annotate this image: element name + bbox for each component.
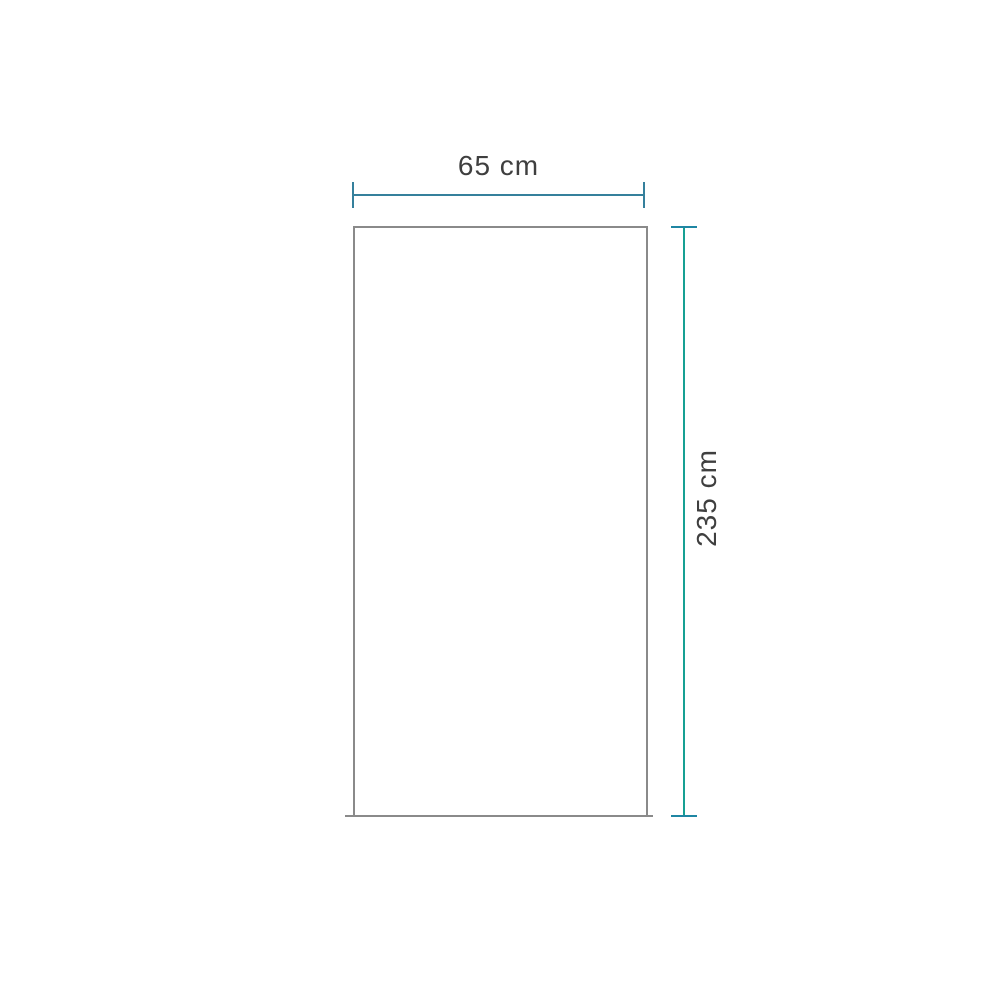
width-dimension-line	[353, 194, 645, 196]
height-dimension-line	[683, 226, 685, 817]
height-dimension-cap-bottom	[671, 815, 697, 817]
width-dimension-cap-left	[352, 182, 354, 208]
width-dimension-cap-right	[643, 182, 645, 208]
panel-bottom-line	[345, 815, 653, 817]
height-dimension-cap-top	[671, 226, 697, 228]
diagram-canvas: 65 cm 235 cm	[0, 0, 1000, 1000]
height-dimension-label: 235 cm	[691, 449, 723, 547]
panel-outline	[353, 226, 648, 817]
width-dimension-label: 65 cm	[353, 150, 644, 182]
